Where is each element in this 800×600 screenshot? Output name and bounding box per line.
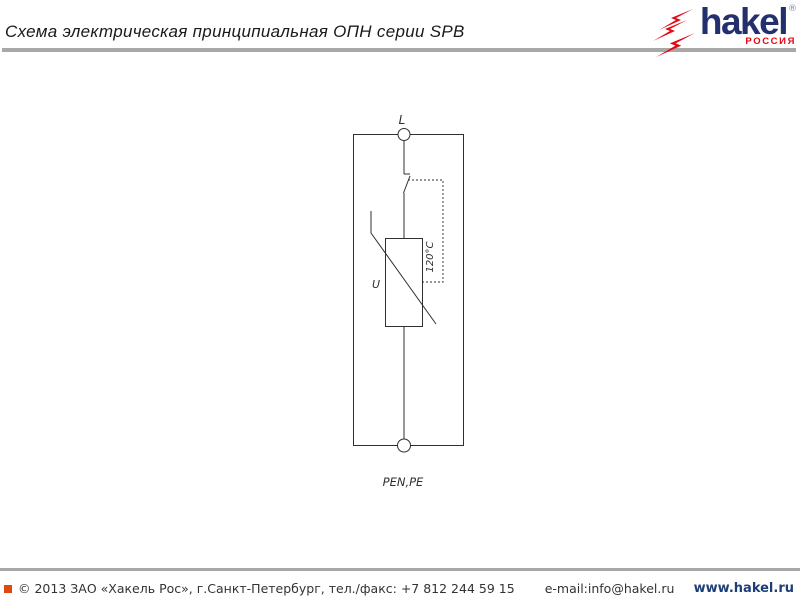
circuit-schematic: L U 120°C PEN,PE bbox=[340, 100, 480, 500]
footer-divider bbox=[0, 568, 800, 571]
registered-mark: ® bbox=[788, 4, 797, 14]
label-line-terminal: L bbox=[399, 113, 406, 127]
lightning-bolts-icon bbox=[652, 8, 698, 60]
footer-bullet-icon bbox=[4, 585, 12, 593]
footer-website: www.hakel.ru bbox=[694, 581, 794, 596]
footer-email: e-mail:info@hakel.ru bbox=[545, 581, 675, 596]
footer-copyright: © 2013 ЗАО «Хакель Рос», г.Санкт-Петербу… bbox=[18, 581, 515, 596]
footer: © 2013 ЗАО «Хакель Рос», г.Санкт-Петербу… bbox=[0, 577, 800, 600]
terminal-bottom bbox=[398, 439, 411, 452]
page-title: Схема электрическая принципиальная ОПН с… bbox=[5, 22, 465, 42]
label-pen-pe-terminal: PEN,PE bbox=[383, 475, 424, 489]
varistor-body bbox=[386, 239, 423, 327]
terminal-top bbox=[398, 129, 410, 141]
label-thermal-temperature: 120°C bbox=[425, 241, 436, 272]
disconnect-blade bbox=[404, 176, 411, 193]
brand-block: hakel® РОССИЯ bbox=[700, 6, 796, 47]
label-varistor-voltage: U bbox=[372, 278, 380, 291]
hakel-logo: hakel® РОССИЯ bbox=[652, 6, 796, 60]
